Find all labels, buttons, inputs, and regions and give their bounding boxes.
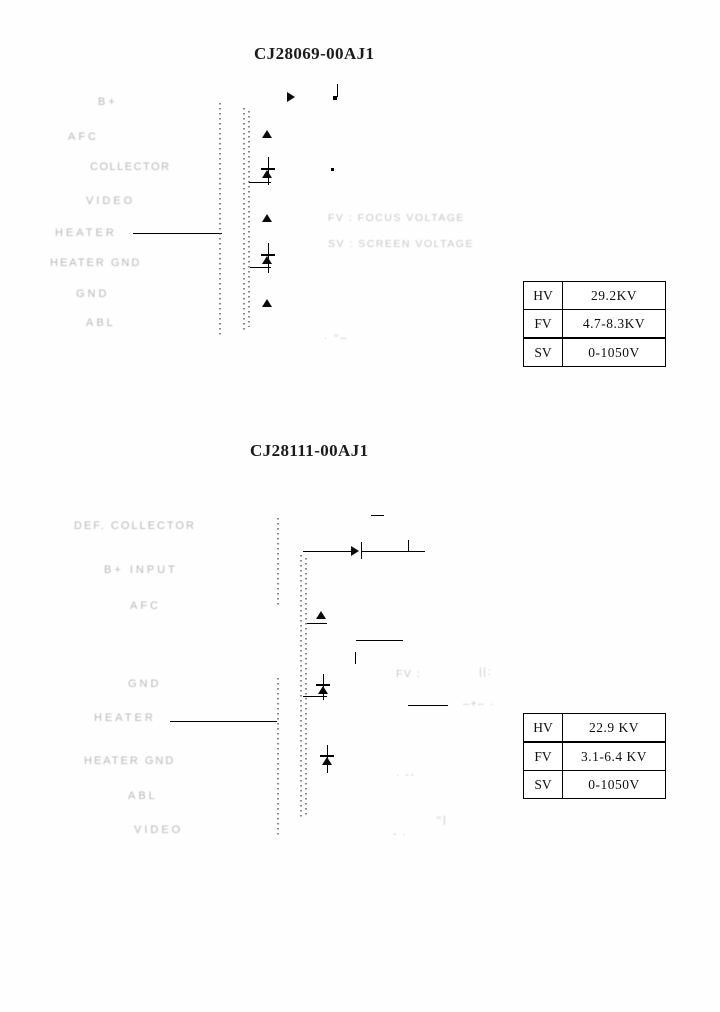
pin-label: DEF. COLLECTOR: [74, 520, 196, 532]
pin-label: COLLECTOR: [90, 161, 171, 173]
wire-line: [250, 267, 271, 268]
winding-coil: [219, 103, 221, 335]
hv-dot: [333, 96, 337, 100]
pin-dot: [331, 168, 334, 171]
wire-line: [362, 551, 425, 552]
part-number-title: CJ28069-00AJ1: [254, 44, 374, 64]
diode-icon: [318, 686, 328, 694]
table-row: HV 29.2KV: [524, 282, 666, 310]
spec-value: 22.9 KV: [563, 714, 666, 743]
winding-coil: [277, 518, 279, 606]
diode-icon: [262, 299, 272, 307]
spec-table: HV 22.9 KV FV 3.1-6.4 KV SV 0-1050V: [523, 713, 666, 799]
illegible-marks: · ⁼–: [324, 332, 348, 344]
diode-icon: [351, 546, 359, 556]
spec-value: 3.1-6.4 KV: [563, 742, 666, 771]
wire-line: [303, 696, 327, 697]
pin-label: AFC: [68, 131, 99, 143]
pin-label: VIDEO: [134, 824, 183, 836]
pin-label: GND: [128, 678, 161, 690]
pin-label: HEATER: [55, 227, 117, 239]
winding-coil: [243, 108, 245, 330]
diode-icon: [262, 130, 272, 138]
datasheet-page: CJ28069-00AJ1 B+ AFC COLLECTOR VIDEO HEA…: [0, 0, 720, 1012]
spec-label: FV: [524, 310, 563, 339]
pin-label: B+ INPUT: [104, 564, 178, 576]
illegible-marks: ⁼|: [436, 814, 447, 826]
diode-icon: [262, 214, 272, 222]
table-row: FV 3.1-6.4 KV: [524, 742, 666, 771]
wire-line: [355, 652, 356, 664]
diode-icon: [287, 92, 295, 102]
diode-icon: [262, 256, 272, 264]
wire-line: [371, 515, 384, 516]
spec-value: 0-1050V: [563, 771, 666, 799]
spec-label: FV: [524, 742, 563, 771]
screen-output-marks: –+– ·: [463, 698, 495, 710]
winding-coil: [248, 111, 250, 327]
screen-note: SV : SCREEN VOLTAGE: [328, 238, 474, 250]
wire-line: [356, 640, 403, 641]
diode-icon: [316, 611, 326, 619]
wire-line: [133, 233, 222, 234]
wire-line: [249, 182, 271, 183]
spec-value: 0-1050V: [563, 338, 666, 367]
table-row: FV 4.7-8.3KV: [524, 310, 666, 339]
winding-coil: [277, 678, 279, 835]
spec-value: 4.7-8.3KV: [563, 310, 666, 339]
illegible-marks: · ‐‐: [396, 769, 415, 781]
winding-coil: [300, 555, 302, 818]
wire-line: [170, 721, 277, 722]
pin-label: HEATER: [94, 712, 156, 724]
pin-label: HEATER GND: [84, 755, 175, 767]
part-number-title: CJ28111-00AJ1: [250, 441, 369, 461]
table-row: SV 0-1050V: [524, 338, 666, 367]
spec-label: HV: [524, 282, 563, 310]
wire-line: [408, 705, 448, 706]
spec-label: SV: [524, 771, 563, 799]
spec-label: HV: [524, 714, 563, 743]
wire-line: [303, 551, 352, 552]
wire-line: [307, 623, 327, 624]
pin-label: ABL: [86, 317, 116, 329]
table-row: HV 22.9 KV: [524, 714, 666, 743]
pin-label: B+: [98, 96, 118, 108]
hv-lead-mark: [408, 540, 409, 551]
pin-label: ABL: [128, 790, 158, 802]
spec-value: 29.2KV: [563, 282, 666, 310]
winding-coil: [305, 558, 307, 816]
pin-label: HEATER GND: [50, 257, 141, 269]
pin-label: AFC: [130, 600, 161, 612]
diode-icon: [262, 170, 272, 178]
illegible-marks: ‐ ·: [393, 828, 407, 840]
diode-icon: [322, 757, 332, 765]
focus-note: FV : FOCUS VOLTAGE: [328, 212, 465, 224]
illegible-marks: ||:: [479, 666, 492, 678]
spec-table: HV 29.2KV FV 4.7-8.3KV SV 0-1050V: [523, 281, 666, 367]
pin-label: GND: [76, 288, 109, 300]
spec-label: SV: [524, 338, 563, 367]
pin-label: VIDEO: [86, 195, 135, 207]
hv-lead-mark: [337, 84, 338, 97]
table-row: SV 0-1050V: [524, 771, 666, 799]
focus-note: FV :: [396, 668, 421, 680]
